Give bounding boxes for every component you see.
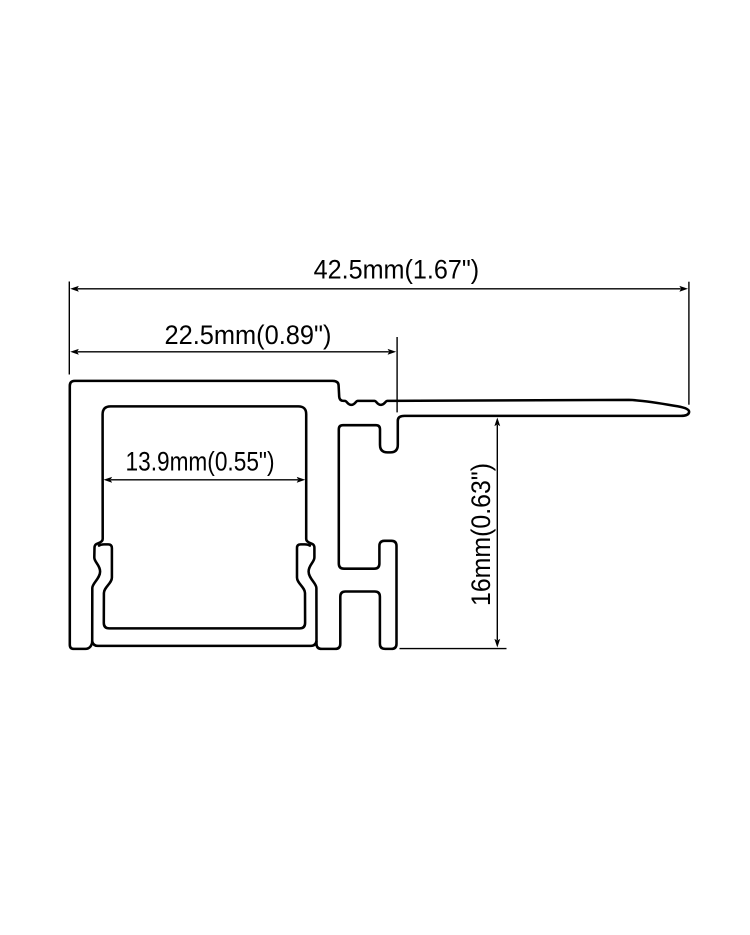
- svg-text:22.5mm(0.89"): 22.5mm(0.89"): [165, 320, 332, 350]
- svg-text:16mm(0.63"): 16mm(0.63"): [466, 463, 496, 606]
- svg-text:42.5mm(1.67"): 42.5mm(1.67"): [314, 255, 480, 285]
- svg-text:13.9mm(0.55"): 13.9mm(0.55"): [126, 447, 275, 477]
